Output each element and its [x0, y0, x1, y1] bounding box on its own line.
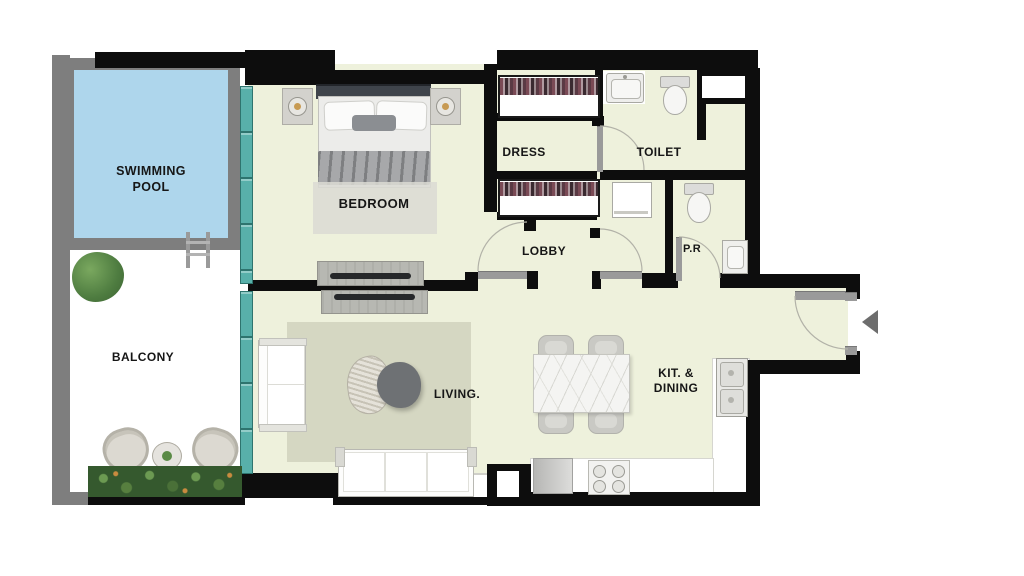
pr-sink [722, 240, 748, 274]
bed-accent-pillow [352, 115, 396, 131]
pr-wc [684, 183, 712, 223]
toilet-shaft-niche [702, 76, 746, 98]
pool-ladder-icon [186, 232, 210, 268]
dining-table [533, 354, 630, 413]
top-wall-pool [95, 52, 245, 68]
entry-door-jamb-bottom [845, 346, 857, 355]
balcony-planter-hedge [88, 466, 242, 497]
nook-pr-wall [665, 180, 673, 276]
bathroom-sink [606, 73, 644, 103]
lobby-label: LOBBY [494, 244, 594, 259]
lobby-jamb-center-left [527, 271, 538, 289]
swimming-pool-water [74, 70, 228, 238]
toilet-lobby-wall [600, 170, 760, 180]
entry-door-jamb-top [845, 292, 857, 301]
kitchen-right-floor [712, 288, 748, 358]
wardrobe-top [498, 75, 600, 118]
bed [318, 96, 431, 188]
sofa-left [258, 340, 306, 428]
floor-plan: SWIMMING POOL BALCONY BEDROOM DRESS TOIL… [0, 0, 1024, 576]
entry-arrow-icon [862, 310, 878, 334]
balcony-label: BALCONY [93, 350, 193, 365]
pr-bottom-wall [720, 273, 748, 288]
swimming-pool-label: SWIMMING POOL [91, 164, 211, 195]
dress-label: DRESS [484, 145, 564, 160]
refrigerator [533, 458, 573, 494]
pr-label: P.R [672, 243, 712, 257]
bottom-wall-left [240, 473, 340, 498]
lobby-kitchen-door-threshold [600, 271, 642, 279]
bottom-window-sill-wall [333, 497, 508, 505]
lobby-hinge-block-left [524, 220, 536, 231]
bed-blanket [318, 151, 430, 185]
kit-dining-label: KIT. & DINING [626, 366, 726, 396]
toilet-wc [660, 76, 688, 114]
top-wall-bedroom [333, 70, 497, 84]
toilet-right-wall-stub [697, 104, 706, 140]
lobby-jamb-left [465, 272, 478, 289]
lobby-kitchen-wall [642, 273, 678, 288]
bedroom-right-wall [484, 64, 497, 212]
lobby-hinge-block-right [590, 228, 600, 238]
tv-icon [330, 273, 411, 279]
toilet-door-leaf [597, 126, 603, 172]
washing-machine [612, 182, 652, 218]
balcony-left-wall [52, 55, 70, 505]
tv-icon [334, 294, 415, 300]
bedroom-balcony-glass-door [240, 86, 253, 284]
wardrobe-bottom-upper-rail [497, 171, 597, 179]
nightstand-right [430, 88, 461, 125]
top-wall-right [497, 50, 758, 70]
corridor-bottom-wall [745, 360, 860, 374]
toilet-label: TOILET [609, 145, 709, 160]
living-balcony-glass-door [240, 291, 253, 474]
corridor-top-wall [745, 274, 860, 288]
living-label: LIVING. [407, 387, 507, 402]
tv-console-living [321, 290, 428, 314]
stove-cooktop [588, 460, 630, 495]
wardrobe-bottom [498, 179, 600, 217]
nightstand-left [282, 88, 313, 125]
top-wall-block-left [245, 50, 335, 85]
bedroom-label: BEDROOM [314, 196, 434, 212]
tv-console-bedroom [317, 261, 424, 286]
potted-plant-icon [162, 451, 172, 461]
entry-door-leaf [795, 291, 846, 300]
kitchen-duct-niche [497, 471, 519, 497]
sofa-bottom [338, 449, 474, 497]
bottom-wall-right [530, 492, 760, 506]
lobby-living-door-threshold [478, 271, 527, 279]
right-outer-wall-bottom [746, 374, 760, 504]
